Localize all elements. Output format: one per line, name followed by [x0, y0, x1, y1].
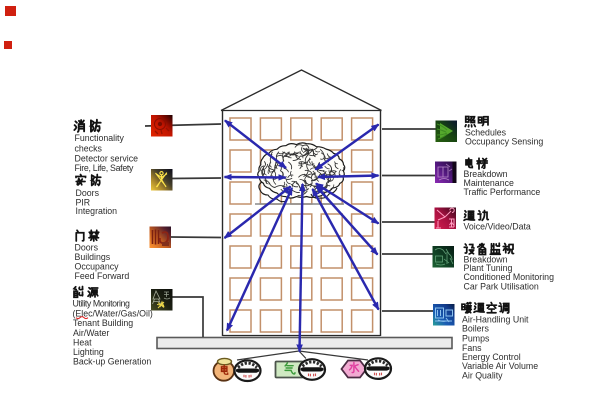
- svg-text:Boilers: Boilers: [462, 324, 489, 334]
- svg-text:Voice/Video/Data: Voice/Video/Data: [464, 221, 531, 231]
- svg-text:Feed Forward: Feed Forward: [75, 271, 130, 281]
- svg-text:Occupancy: Occupancy: [75, 262, 120, 272]
- svg-text:Car Park Utilisation: Car Park Utilisation: [464, 281, 539, 291]
- svg-text:(Elec/Water/Gas/Oil): (Elec/Water/Gas/Oil): [73, 308, 153, 318]
- svg-text:Air Quality: Air Quality: [462, 371, 503, 381]
- svg-text:Heat: Heat: [73, 337, 92, 347]
- svg-text:Fire, Life, Safety: Fire, Life, Safety: [75, 163, 135, 173]
- svg-text:Functionality: Functionality: [75, 133, 125, 143]
- svg-text:Tenant Building: Tenant Building: [73, 318, 133, 328]
- svg-text:Traffic Performance: Traffic Performance: [464, 187, 541, 197]
- svg-text:Air/Water: Air/Water: [73, 328, 109, 338]
- svg-text:Variable Air Volume: Variable Air Volume: [462, 361, 538, 371]
- svg-text:Utility Monitoring: Utility Monitoring: [73, 298, 130, 308]
- svg-text:Pumps: Pumps: [462, 334, 490, 344]
- svg-text:checks: checks: [75, 143, 103, 153]
- svg-text:Back-up Generation: Back-up Generation: [73, 357, 151, 367]
- svg-text:Occupancy Sensing: Occupancy Sensing: [465, 137, 543, 147]
- svg-text:Detector service: Detector service: [75, 154, 139, 164]
- svg-text:Lighting: Lighting: [73, 347, 104, 357]
- svg-text:Integration: Integration: [76, 206, 118, 216]
- svg-text:Doors: Doors: [75, 243, 99, 253]
